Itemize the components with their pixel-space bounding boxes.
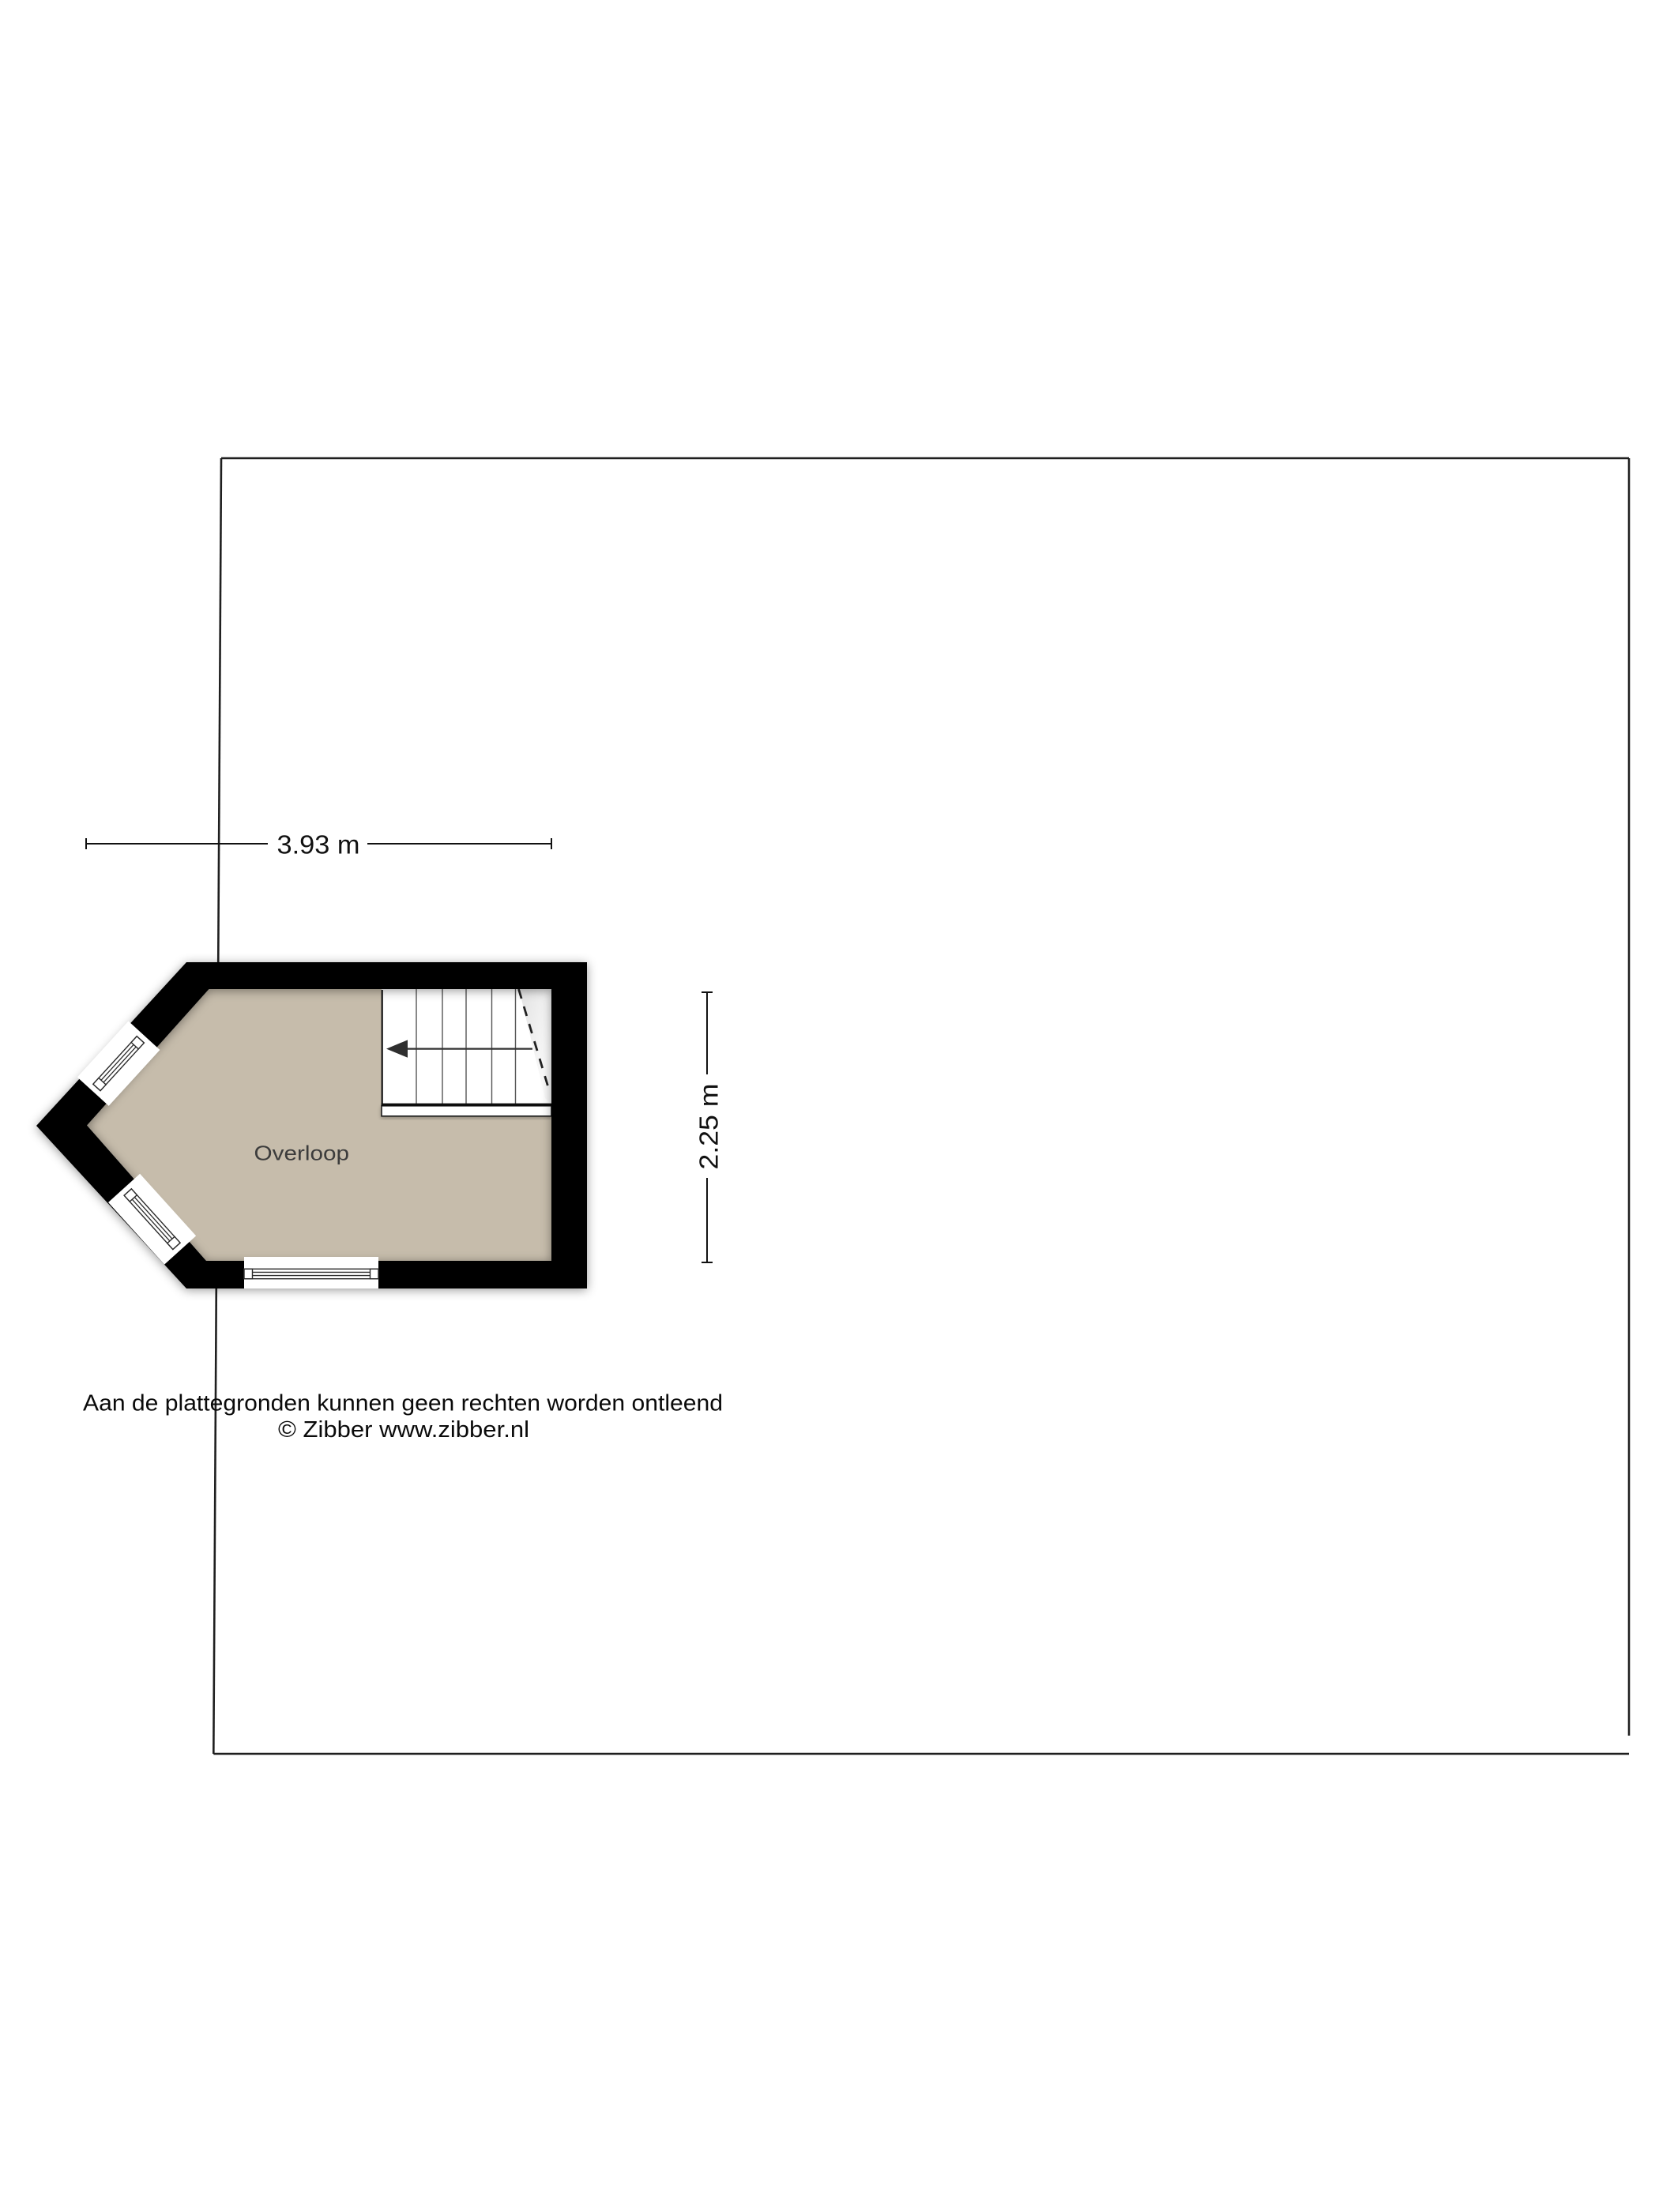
svg-text:© Zibber www.zibber.nl: © Zibber www.zibber.nl: [278, 1417, 529, 1443]
svg-text:3.93 m: 3.93 m: [277, 830, 360, 860]
svg-text:Aan de plattegronden kunnen ge: Aan de plattegronden kunnen geen rechten…: [83, 1391, 723, 1416]
svg-text:2.25 m: 2.25 m: [694, 1084, 724, 1170]
svg-text:Overloop: Overloop: [254, 1142, 350, 1165]
